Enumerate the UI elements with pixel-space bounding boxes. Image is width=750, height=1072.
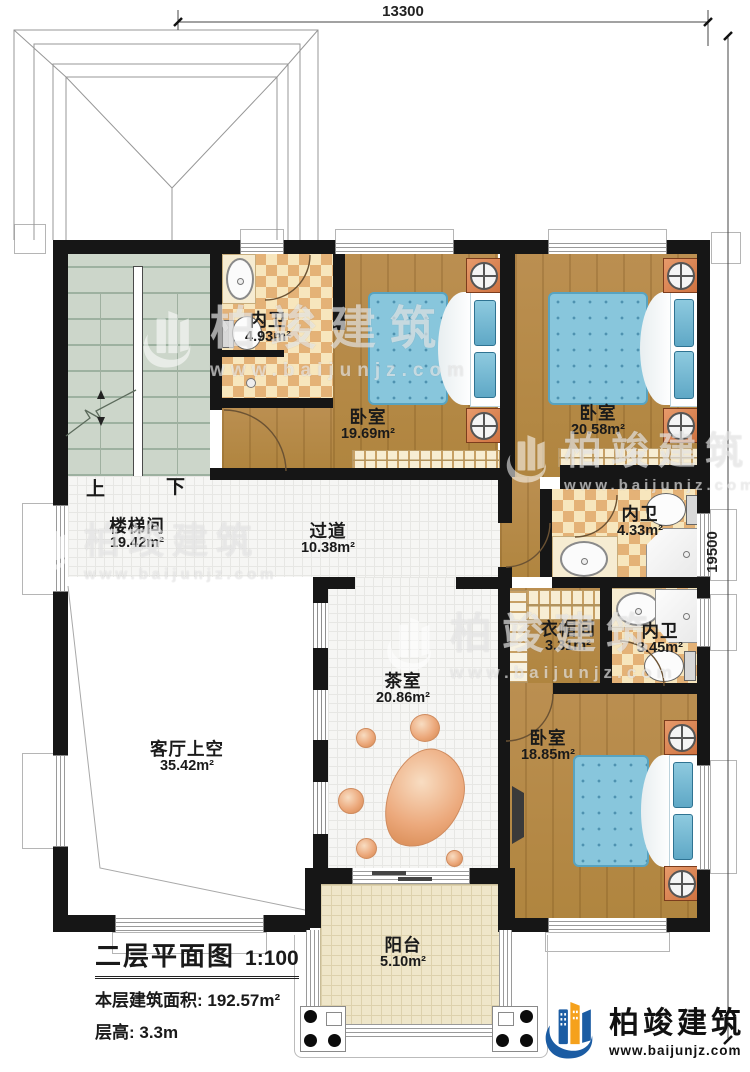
- wall: [552, 577, 697, 588]
- wall: [498, 567, 512, 577]
- brand-logo-icon: [540, 996, 602, 1060]
- bath1-sink: [226, 258, 254, 300]
- room-label-stairwell: 楼梯间 19.42m²: [72, 517, 202, 552]
- room-label-tearoom: 茶室 20.86m²: [338, 672, 468, 707]
- bedroom1-bed: [368, 292, 505, 405]
- window-sill: [22, 753, 54, 849]
- wall: [210, 468, 505, 480]
- balcony-column: [492, 1006, 538, 1052]
- nightstand: [466, 258, 501, 293]
- window-sill: [710, 760, 737, 874]
- wall: [210, 398, 333, 408]
- wall: [333, 254, 345, 330]
- room-label-balcony: 阳台 5.10m²: [338, 936, 468, 971]
- bath1-floor-drain: [246, 378, 256, 388]
- brand-name: 柏竣建筑: [609, 998, 745, 1042]
- window: [335, 240, 454, 254]
- roof-outline: [14, 30, 318, 240]
- bath2-sink: [560, 541, 608, 577]
- window: [697, 765, 710, 870]
- window-sill: [14, 224, 46, 254]
- wall: [553, 683, 697, 694]
- dimension-right: 19500: [704, 522, 720, 582]
- railing-post: [313, 648, 328, 690]
- window-sill: [545, 932, 670, 952]
- tearoom-art-stone: [356, 838, 377, 859]
- wall: [468, 868, 515, 884]
- room-label-bath1: 内卫 4.93m²: [203, 311, 333, 346]
- railing-post: [313, 740, 328, 782]
- tearoom-art-stone: [446, 850, 463, 867]
- nightstand: [664, 720, 699, 755]
- window: [53, 505, 68, 592]
- room-label-bedroom2: 卧室 20.58m²: [533, 404, 663, 439]
- stair-down-label: 下: [166, 472, 185, 499]
- dimension-top: 13300: [368, 3, 438, 20]
- room-label-hallway: 过道 10.38m²: [263, 522, 393, 557]
- room-label-bedroom3: 卧室 18.85m²: [483, 729, 613, 764]
- bedroom3-tv: [512, 786, 524, 844]
- stair-center-rail: [133, 266, 143, 478]
- cloakroom-rack: [526, 590, 602, 620]
- floor-area-text: 本层建筑面积: 192.57m²: [95, 986, 299, 1011]
- bedroom1-wardrobe: [352, 450, 500, 470]
- bedroom3-bed: [573, 755, 697, 867]
- nightstand: [663, 258, 698, 293]
- brand-block: 柏竣建筑 www.baijunjz.com: [540, 996, 745, 1060]
- void-railing: [313, 577, 328, 868]
- window: [240, 240, 284, 254]
- nightstand: [466, 408, 501, 443]
- stairwell-floor: [68, 254, 210, 476]
- balcony-railing: [306, 930, 319, 1010]
- nightstand: [663, 408, 698, 443]
- bath1-partition-wall: [222, 350, 284, 357]
- tearoom-art-stone: [410, 714, 440, 742]
- wall: [305, 868, 352, 884]
- wall: [305, 884, 321, 928]
- tearoom-art-stone: [338, 788, 364, 814]
- wall: [500, 884, 515, 928]
- wall: [540, 489, 552, 577]
- window: [548, 918, 667, 932]
- wall: [500, 254, 515, 477]
- stair-up-label: 上: [86, 474, 105, 501]
- balcony-column: [300, 1006, 346, 1052]
- tearoom-art-stone: [356, 728, 376, 748]
- window: [53, 755, 68, 847]
- wall: [313, 577, 355, 589]
- window: [548, 240, 667, 254]
- plan-title-row: 二层平面图1:100: [95, 936, 299, 979]
- title-block: 二层平面图1:100 本层建筑面积: 192.57m² 层高: 3.3m: [95, 936, 299, 1043]
- sliding-door: [352, 868, 470, 884]
- nightstand: [664, 866, 699, 901]
- floor-plan-canvas: 13300 19500 内卫 4.93m² 卧室 19.69m² 卧室 20.5…: [0, 0, 750, 1072]
- window-sill: [711, 232, 741, 264]
- bedroom2-bed: [548, 292, 697, 405]
- room-label-void: 客厅上空 35.42m²: [122, 740, 252, 775]
- room-label-bath2: 内卫 4.33m²: [575, 505, 705, 540]
- brand-url: www.baijunjz.com: [609, 1043, 745, 1058]
- sliding-door-panel: [398, 877, 432, 881]
- wall: [665, 918, 710, 932]
- wall: [498, 577, 512, 588]
- railing-post: [313, 834, 328, 868]
- room-label-bedroom1: 卧室 19.69m²: [303, 408, 433, 443]
- wall: [560, 465, 697, 489]
- balcony-railing: [499, 930, 512, 1010]
- plan-scale: 1:100: [245, 947, 299, 970]
- wall: [53, 915, 115, 932]
- sliding-door-panel: [372, 871, 406, 875]
- room-label-bath3: 内卫 3.45m²: [595, 622, 725, 657]
- wall: [498, 477, 512, 523]
- wall: [262, 915, 310, 932]
- wall: [456, 577, 498, 589]
- window: [115, 915, 264, 932]
- window-sill: [22, 503, 54, 595]
- floor-height-text: 层高: 3.3m: [95, 1018, 299, 1043]
- plan-title: 二层平面图: [95, 941, 235, 971]
